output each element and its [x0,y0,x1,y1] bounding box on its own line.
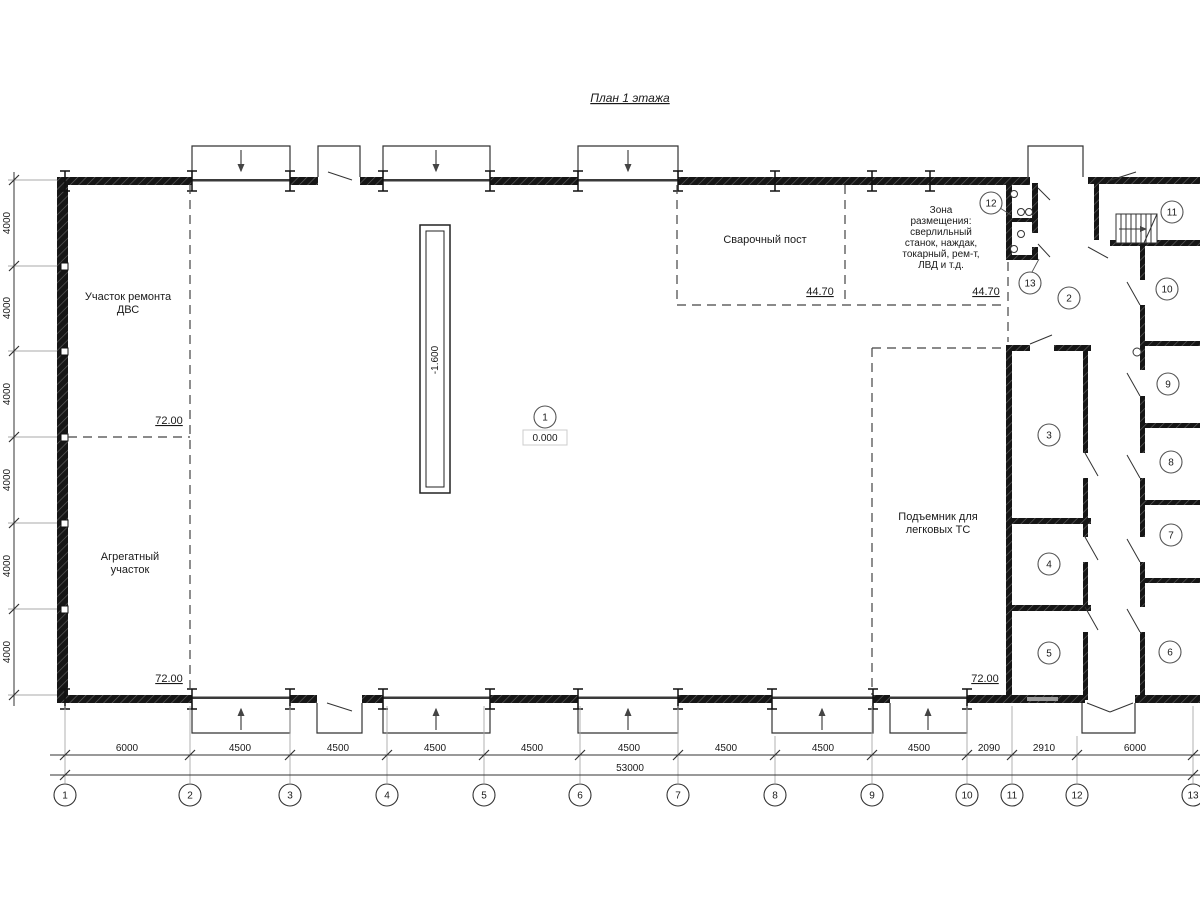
dim-label-left: 4000 [2,468,13,491]
aggregate-label-2: участок [111,564,150,576]
grid-bubble-label: 2 [187,791,193,802]
dim-label: 2910 [1033,743,1056,754]
equipment-zone-line: станок, наждак, [905,238,977,249]
car-lift-label: Подъемник для [898,511,977,523]
grid-bubble-label: 12 [1071,791,1083,802]
room-label-10: 10 [1161,285,1173,296]
dim-label-left: 4000 [2,296,13,319]
equipment-zone-line: токарный, рем-т, [902,249,979,260]
floor-plan-page: План 1 этажа [0,0,1200,900]
pit-elevation-label: -1.600 [430,345,441,374]
car-lift-area: 72.00 [971,673,999,685]
gate-direction-arrows [241,150,928,730]
room-label-2: 2 [1066,294,1072,305]
engine-repair-area: 72.00 [155,415,183,427]
gate-leaves [192,179,967,699]
equipment-zone-area: 44.70 [972,286,1000,298]
page-title: План 1 этажа [590,91,670,105]
room-label-9: 9 [1165,380,1171,391]
grid-bubble-label: 13 [1187,791,1199,802]
dim-total-label: 53000 [616,763,644,774]
grid-bubble-label: 10 [961,791,973,802]
aggregate-label: Агрегатный [101,551,159,563]
room-label-3: 3 [1046,431,1052,442]
dim-label: 4500 [812,743,835,754]
dim-label: 4500 [521,743,544,754]
dim-label: 4500 [229,743,252,754]
grid-bubble-label: 8 [772,791,778,802]
welding-post-area: 44.70 [806,286,834,298]
room-label-7: 7 [1168,531,1174,542]
window [1027,697,1058,701]
dim-label: 4500 [715,743,738,754]
dim-label-left: 4000 [2,211,13,234]
room-label-6: 6 [1167,648,1173,659]
grid-bubble-label: 9 [869,791,875,802]
engine-repair-label: Участок ремонта [85,291,172,303]
dim-label: 4500 [327,743,350,754]
equipment-zone-line: ЛВД и т.д. [918,260,964,271]
dim-label: 6000 [1124,743,1147,754]
dim-label-left: 4000 [2,554,13,577]
grid-bubble-label: 7 [675,791,681,802]
gate-porch-outlines [192,146,1135,733]
aggregate-area: 72.00 [155,673,183,685]
dim-label: 4500 [908,743,931,754]
equipment-zone-line: Зона [930,205,953,216]
staircase [1116,214,1157,243]
grid-bubble-label: 11 [1007,791,1018,802]
grid-bubble-label: 6 [577,791,583,802]
room-label-13: 13 [1024,279,1036,290]
dim-label: 4500 [618,743,641,754]
room-label-12: 12 [985,199,997,210]
floor-elevation-label: 0.000 [532,433,557,444]
grid-bubbles: 1 2 3 4 5 6 7 8 9 10 11 12 13 [54,784,1200,806]
room-label-8: 8 [1168,458,1174,469]
equipment-zone-line: размещения: [910,216,971,227]
room-number-labels: 1 2 3 4 5 6 7 8 9 10 11 12 13 [542,199,1177,660]
dim-label-left: 4000 [2,640,13,663]
welding-post-label: Сварочный пост [723,234,806,246]
interior-walls [1006,183,1200,700]
grid-bubble-label: 1 [62,791,68,802]
grid-bubble-label: 5 [481,791,487,802]
floor-plan-canvas: План 1 этажа [0,0,1200,900]
grid-bubble-label: 3 [287,791,293,802]
engine-repair-label-2: ДВС [117,304,139,316]
car-lift-label-2: легковых ТС [906,524,971,536]
room-label-1: 1 [542,413,548,424]
dim-label: 2090 [978,743,1001,754]
grid-bubble-label: 4 [384,791,390,802]
room-label-11: 11 [1167,208,1178,219]
dim-label: 4500 [424,743,447,754]
left-dimension-chain: 4000 4000 4000 4000 4000 4000 [2,172,57,706]
equipment-zone-line: сверлильный [910,227,972,238]
dim-label: 6000 [116,743,139,754]
bottom-dimension-chain: 6000 4500 4500 4500 4500 4500 4500 4500 … [50,706,1200,783]
room-label-4: 4 [1046,560,1052,571]
column-ibeam-symbols [60,171,972,709]
room-label-5: 5 [1046,649,1052,660]
dim-label-left: 4000 [2,382,13,405]
